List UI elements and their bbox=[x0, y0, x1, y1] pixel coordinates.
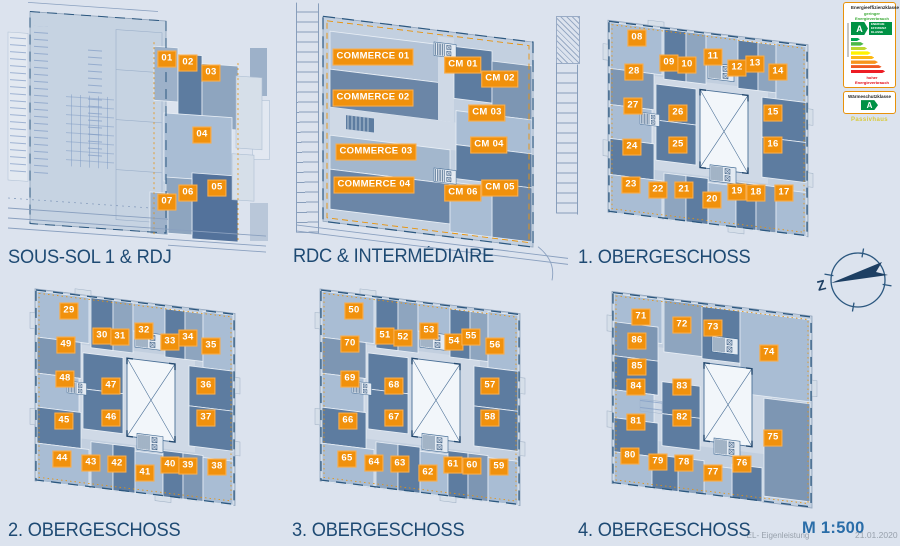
unit-label-70[interactable]: 70 bbox=[340, 336, 359, 353]
unit-label-31[interactable]: 31 bbox=[110, 329, 129, 346]
unit-label-52[interactable]: 52 bbox=[393, 330, 412, 347]
unit-label-32[interactable]: 32 bbox=[134, 323, 153, 340]
unit-label-61[interactable]: 61 bbox=[443, 457, 462, 474]
unit-label-75[interactable]: 75 bbox=[763, 430, 782, 447]
plan-title-og1: 1. OBERGESCHOSS bbox=[578, 247, 750, 269]
unit-label-cm-01[interactable]: CM 01 bbox=[444, 57, 481, 74]
unit-label-85[interactable]: 85 bbox=[627, 359, 646, 376]
unit-label-40[interactable]: 40 bbox=[160, 457, 179, 474]
plan-title-og4: 4. OBERGESCHOSS bbox=[578, 520, 750, 542]
unit-label-cm-04[interactable]: CM 04 bbox=[470, 137, 507, 154]
unit-label-64[interactable]: 64 bbox=[364, 455, 383, 472]
unit-label-16[interactable]: 16 bbox=[763, 137, 782, 154]
unit-label-57[interactable]: 57 bbox=[480, 378, 499, 395]
unit-label-18[interactable]: 18 bbox=[746, 185, 765, 202]
unit-label-77[interactable]: 77 bbox=[703, 465, 722, 482]
unit-label-58[interactable]: 58 bbox=[480, 410, 499, 427]
unit-label-48[interactable]: 48 bbox=[55, 371, 74, 388]
unit-label-04[interactable]: 04 bbox=[192, 127, 211, 144]
unit-label-62[interactable]: 62 bbox=[418, 465, 437, 482]
unit-label-01[interactable]: 01 bbox=[157, 51, 176, 68]
plan-sheet: 01020304050607 COMMERCE 01COM bbox=[0, 0, 900, 546]
unit-label-25[interactable]: 25 bbox=[668, 137, 687, 154]
energy-bar bbox=[851, 60, 878, 63]
unit-label-66[interactable]: 66 bbox=[338, 413, 357, 430]
unit-label-67[interactable]: 67 bbox=[384, 410, 403, 427]
unit-label-19[interactable]: 19 bbox=[727, 184, 746, 201]
energy-bar bbox=[851, 42, 864, 45]
unit-label-commerce-01[interactable]: COMMERCE 01 bbox=[333, 49, 414, 66]
plan-title-og3: 3. OBERGESCHOSS bbox=[292, 520, 464, 542]
floorplan-rdc: COMMERCE 01COMMERCE 02COMMERCE 03COMMERC… bbox=[288, 0, 573, 252]
unit-label-cm-02[interactable]: CM 02 bbox=[481, 71, 518, 88]
unit-label-cm-05[interactable]: CM 05 bbox=[481, 180, 518, 197]
unit-label-42[interactable]: 42 bbox=[107, 456, 126, 473]
unit-label-35[interactable]: 35 bbox=[201, 338, 220, 355]
energy-scale-axis bbox=[847, 23, 850, 57]
insulation-class-letter: A bbox=[867, 101, 873, 110]
energy-bar bbox=[851, 56, 874, 59]
passive-house-label: Passivhaus bbox=[843, 117, 896, 123]
unit-label-13[interactable]: 13 bbox=[745, 56, 764, 73]
unit-label-24[interactable]: 24 bbox=[622, 139, 641, 156]
unit-label-50[interactable]: 50 bbox=[344, 303, 363, 320]
unit-label-17[interactable]: 17 bbox=[774, 185, 793, 202]
energy-efficiency-box: Energieeffizienzklasse geringer Energiev… bbox=[843, 2, 896, 88]
unit-label-commerce-04[interactable]: COMMERCE 04 bbox=[334, 177, 415, 194]
unit-label-34[interactable]: 34 bbox=[178, 330, 197, 347]
unit-label-29[interactable]: 29 bbox=[59, 303, 78, 320]
unit-label-10[interactable]: 10 bbox=[677, 57, 696, 74]
unit-label-commerce-02[interactable]: COMMERCE 02 bbox=[333, 90, 414, 107]
unit-label-86[interactable]: 86 bbox=[627, 333, 646, 350]
unit-label-cm-06[interactable]: CM 06 bbox=[444, 185, 481, 202]
footer-note: -EL- Eigenleistung bbox=[744, 531, 809, 540]
energy-class-letter: A bbox=[856, 24, 863, 34]
unit-label-28[interactable]: 28 bbox=[624, 64, 643, 81]
unit-label-82[interactable]: 82 bbox=[672, 410, 691, 427]
unit-label-23[interactable]: 23 bbox=[621, 177, 640, 194]
footer-date: 21.01.2020 bbox=[855, 530, 898, 540]
unit-label-59[interactable]: 59 bbox=[489, 459, 508, 476]
unit-label-71[interactable]: 71 bbox=[631, 309, 650, 326]
unit-label-81[interactable]: 81 bbox=[626, 414, 645, 431]
energy-efficiency-title: Energieeffizienzklasse bbox=[851, 5, 893, 10]
unit-label-55[interactable]: 55 bbox=[461, 329, 480, 346]
unit-label-73[interactable]: 73 bbox=[703, 320, 722, 337]
unit-label-51[interactable]: 51 bbox=[375, 328, 394, 345]
unit-label-cm-03[interactable]: CM 03 bbox=[468, 105, 505, 122]
unit-label-69[interactable]: 69 bbox=[340, 371, 359, 388]
unit-label-07[interactable]: 07 bbox=[157, 194, 176, 211]
unit-label-06[interactable]: 06 bbox=[178, 185, 197, 202]
plan-title-sous-sol: SOUS-SOL 1 & RDJ bbox=[8, 247, 172, 269]
unit-label-12[interactable]: 12 bbox=[727, 60, 746, 77]
unit-label-20[interactable]: 20 bbox=[702, 192, 721, 209]
energy-scale-bars bbox=[851, 37, 893, 74]
unit-label-05[interactable]: 05 bbox=[207, 180, 226, 197]
north-arrow-drawing: Z bbox=[816, 240, 900, 320]
floorplan-og3: 5051525354555657585960616263646566676869… bbox=[312, 285, 537, 515]
high-consumption-label: hoher Energieverbrauch bbox=[851, 75, 893, 85]
unit-label-11[interactable]: 11 bbox=[704, 49, 723, 66]
insulation-box: Wärmeschutzklasse A bbox=[843, 91, 896, 115]
plan-title-og2: 2. OBERGESCHOSS bbox=[8, 520, 180, 542]
low-consumption-label: geringer Energieverbrauch bbox=[851, 11, 893, 21]
energy-certificate: Energieeffizienzklasse geringer Energiev… bbox=[843, 2, 896, 123]
unit-label-commerce-03[interactable]: COMMERCE 03 bbox=[336, 144, 417, 161]
unit-label-22[interactable]: 22 bbox=[648, 182, 667, 199]
unit-label-41[interactable]: 41 bbox=[135, 465, 154, 482]
unit-label-47[interactable]: 47 bbox=[101, 378, 120, 395]
unit-label-49[interactable]: 49 bbox=[56, 337, 75, 354]
unit-label-74[interactable]: 74 bbox=[759, 345, 778, 362]
insulation-title: Wärmeschutzklasse bbox=[846, 94, 893, 99]
unit-label-26[interactable]: 26 bbox=[668, 105, 687, 122]
unit-label-84[interactable]: 84 bbox=[626, 379, 645, 396]
energy-bar bbox=[851, 70, 885, 73]
unit-label-78[interactable]: 78 bbox=[674, 455, 693, 472]
energy-bar bbox=[851, 51, 871, 54]
unit-label-09[interactable]: 09 bbox=[659, 55, 678, 72]
unit-label-76[interactable]: 76 bbox=[732, 456, 751, 473]
unit-label-72[interactable]: 72 bbox=[672, 317, 691, 334]
unit-label-44[interactable]: 44 bbox=[52, 451, 71, 468]
unit-label-65[interactable]: 65 bbox=[337, 451, 356, 468]
energy-bar bbox=[851, 38, 860, 41]
unit-label-36[interactable]: 36 bbox=[196, 378, 215, 395]
floorplan-sous-sol: 01020304050607 bbox=[8, 2, 268, 246]
unit-label-79[interactable]: 79 bbox=[648, 454, 667, 471]
unit-label-37[interactable]: 37 bbox=[196, 410, 215, 427]
floorplan-og4: 71727374757677787980818283848586 bbox=[608, 288, 828, 512]
unit-label-27[interactable]: 27 bbox=[623, 98, 642, 115]
energy-bar bbox=[851, 65, 882, 68]
unit-label-56[interactable]: 56 bbox=[485, 338, 504, 355]
unit-label-38[interactable]: 38 bbox=[207, 459, 226, 476]
unit-label-68[interactable]: 68 bbox=[384, 378, 403, 395]
plan-title-rdc: RDC & INTERMÉDIAIRE bbox=[293, 246, 494, 268]
unit-label-21[interactable]: 21 bbox=[674, 182, 693, 199]
unit-label-14[interactable]: 14 bbox=[768, 64, 787, 81]
unit-label-53[interactable]: 53 bbox=[419, 323, 438, 340]
energy-class-text: ENERGIE EFFIZIENZ KLASSE bbox=[869, 22, 892, 35]
insulation-class-arrow: A bbox=[861, 100, 878, 110]
floorplan-og2: 2930313233343536373839404142434445464748… bbox=[28, 285, 253, 515]
unit-label-03[interactable]: 03 bbox=[201, 65, 220, 82]
floorplan-og1: 0809101112131415161718192021222324252627… bbox=[590, 10, 820, 242]
energy-class-arrow: A bbox=[851, 22, 868, 35]
unit-label-63[interactable]: 63 bbox=[390, 456, 409, 473]
unit-label-43[interactable]: 43 bbox=[81, 455, 100, 472]
energy-bar bbox=[851, 47, 867, 50]
unit-label-15[interactable]: 15 bbox=[763, 105, 782, 122]
unit-label-80[interactable]: 80 bbox=[620, 448, 639, 465]
unit-label-33[interactable]: 33 bbox=[160, 334, 179, 351]
unit-label-46[interactable]: 46 bbox=[101, 410, 120, 427]
unit-label-83[interactable]: 83 bbox=[672, 379, 691, 396]
north-arrow: Z bbox=[816, 240, 900, 320]
unit-label-08[interactable]: 08 bbox=[627, 30, 646, 47]
unit-label-30[interactable]: 30 bbox=[92, 328, 111, 345]
unit-label-02[interactable]: 02 bbox=[178, 55, 197, 72]
unit-label-60[interactable]: 60 bbox=[462, 458, 481, 475]
unit-label-45[interactable]: 45 bbox=[54, 413, 73, 430]
unit-label-39[interactable]: 39 bbox=[178, 458, 197, 475]
